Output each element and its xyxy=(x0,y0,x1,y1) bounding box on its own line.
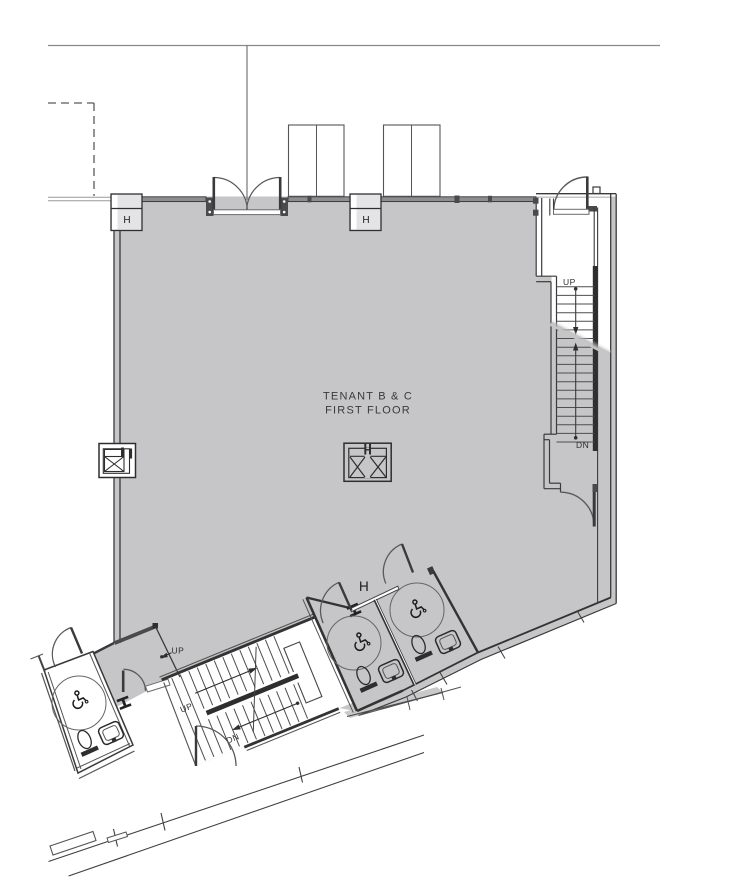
svg-text:H: H xyxy=(362,215,369,226)
svg-text:FIRST FLOOR: FIRST FLOOR xyxy=(325,405,411,417)
svg-text:UP: UP xyxy=(563,277,576,287)
svg-text:H: H xyxy=(123,215,130,226)
svg-text:UP: UP xyxy=(172,646,185,656)
svg-text:DN: DN xyxy=(576,440,589,450)
svg-text:H: H xyxy=(359,579,369,594)
svg-text:TENANT B & C: TENANT B & C xyxy=(323,391,413,403)
